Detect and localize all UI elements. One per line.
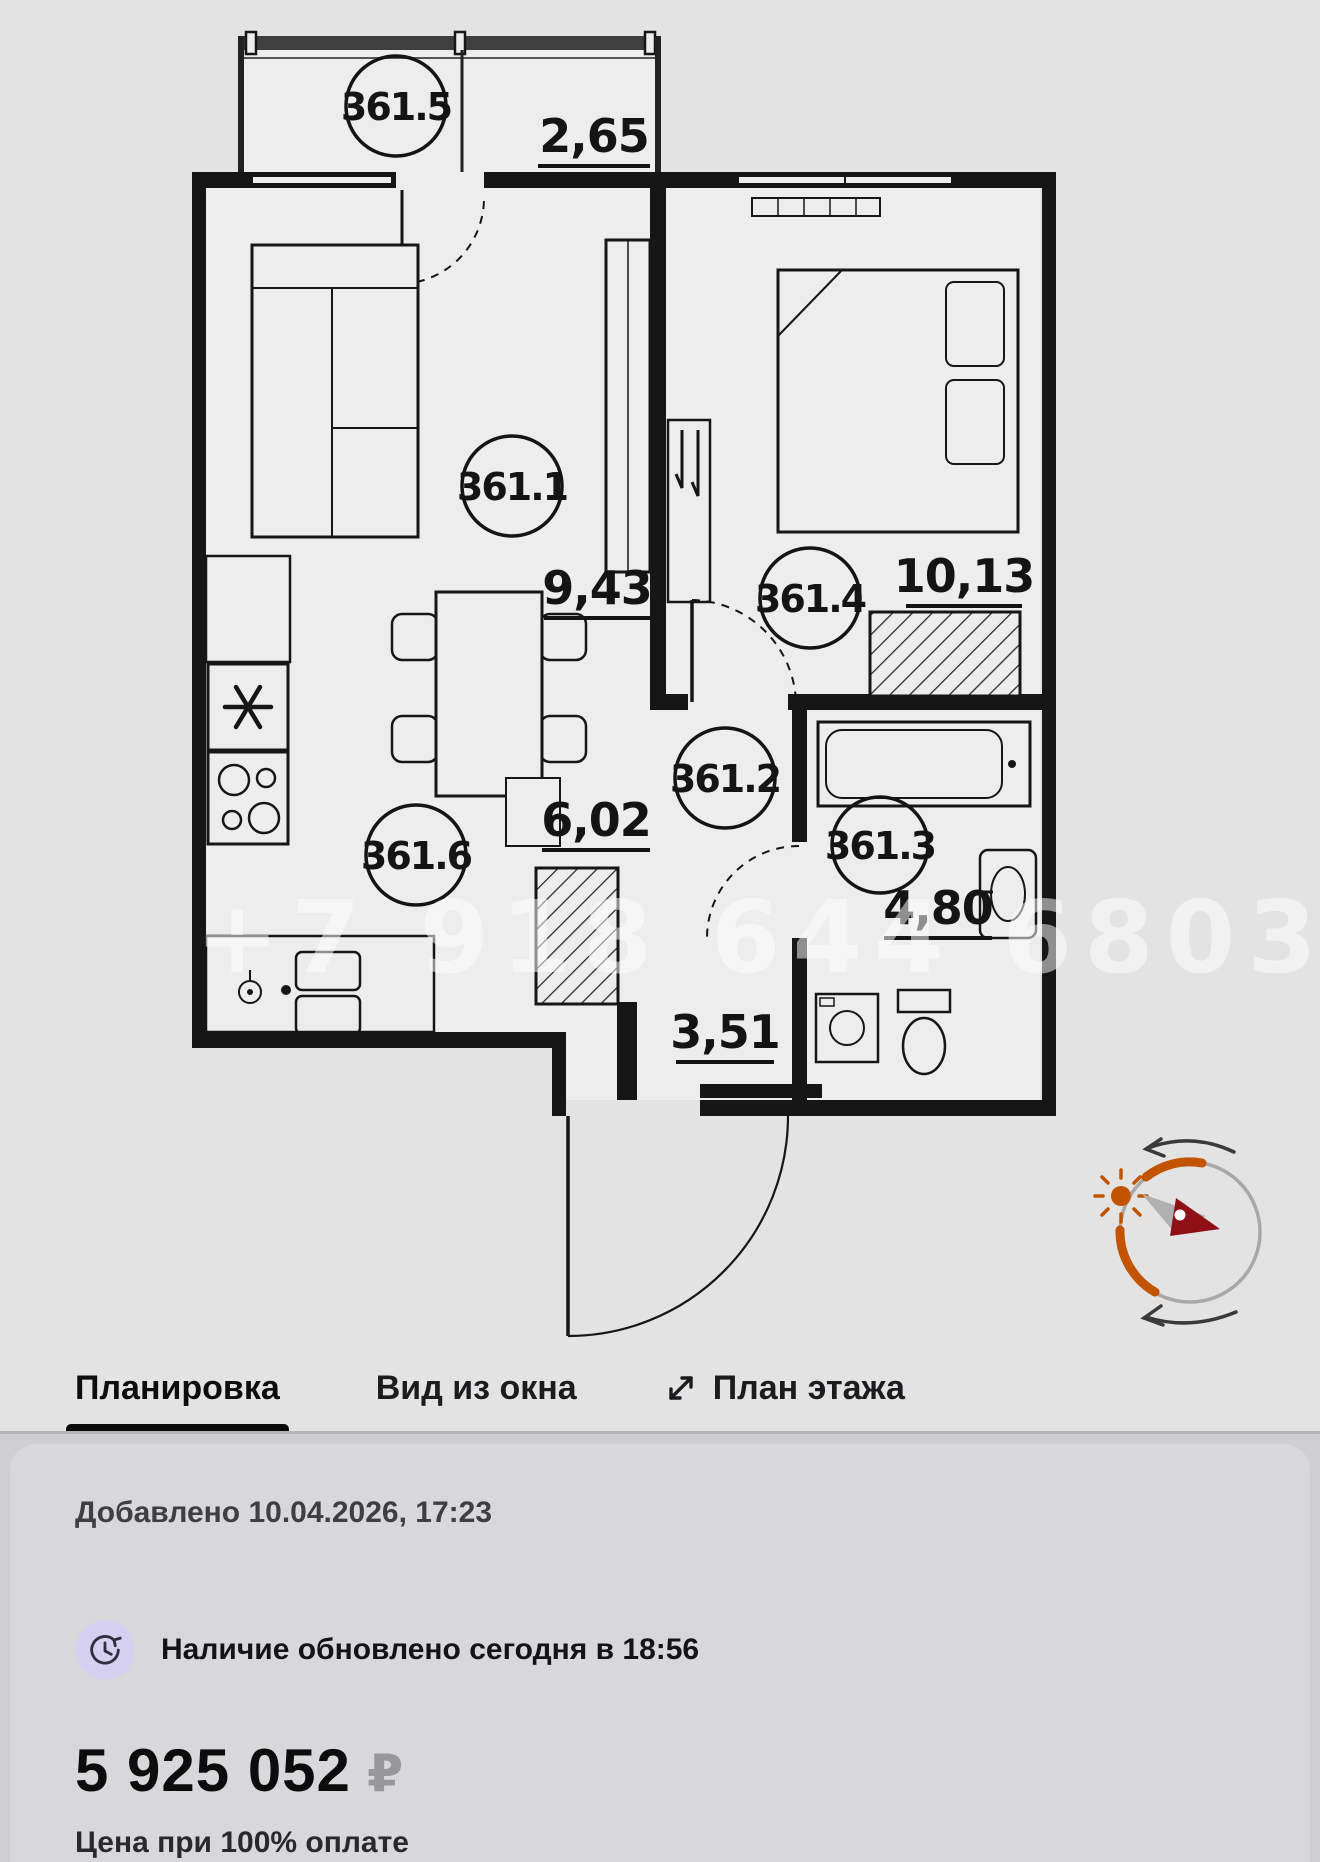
area-kitchen: 6,02 <box>541 793 651 847</box>
area-bedroom: 10,13 <box>894 549 1035 603</box>
tab-layout[interactable]: Планировка <box>75 1345 280 1431</box>
washing-machine <box>816 994 878 1062</box>
bathtub <box>818 722 1030 806</box>
active-tab-underline <box>66 1424 289 1431</box>
wardrobe <box>870 612 1020 696</box>
info-card: Добавлено 10.04.2026, 17:23 Наличие обно… <box>10 1444 1310 1862</box>
kitchen-cabinet <box>206 556 290 662</box>
area-balcony: 2,65 <box>539 109 649 163</box>
room-number-hallway: 361.2 <box>670 757 780 801</box>
sun-icon <box>1095 1170 1147 1222</box>
availability-text: Наличие обновлено сегодня в 18:56 <box>161 1633 699 1667</box>
phone-watermark: +7 918 644 6803 <box>195 879 1320 996</box>
room-number-living: 361.1 <box>457 465 567 509</box>
tab-window-view-label: Вид из окна <box>376 1369 577 1408</box>
price-value: 5 925 052 <box>75 1736 351 1805</box>
availability-row: Наличие обновлено сегодня в 18:56 <box>75 1620 699 1680</box>
clock-refresh-icon <box>86 1631 124 1669</box>
fridge <box>208 664 288 750</box>
toilet <box>898 990 950 1074</box>
room-number-kitchen: 361.6 <box>361 834 472 878</box>
added-date-text: Добавлено 10.04.2026, 17:23 <box>75 1496 492 1530</box>
media-tabbar: Планировка Вид из окна План этажа <box>0 1345 1320 1431</box>
tab-floor-plan[interactable]: План этажа <box>713 1345 905 1431</box>
room-number-bedroom: 361.4 <box>755 577 866 621</box>
tab-layout-label: Планировка <box>75 1369 280 1408</box>
expand-icon <box>663 1370 699 1406</box>
sofa <box>252 245 418 537</box>
listing-screen: { "floor_plan": { "watermark": "+7 918 6… <box>0 0 1320 1862</box>
bottom-sheet: Добавлено 10.04.2026, 17:23 Наличие обно… <box>0 1434 1320 1862</box>
room-number-balcony: 361.5 <box>341 85 451 129</box>
ruble-sign: ₽ <box>367 1744 403 1804</box>
bedroom-closet <box>668 420 710 602</box>
floor-plan-viewer: 361.5 361.1 361.4 361.2 361.3 361.6 2,65… <box>0 0 1320 1345</box>
tab-window-view[interactable]: Вид из окна <box>376 1345 577 1431</box>
tab-floor-plan-label: План этажа <box>713 1369 905 1408</box>
bed <box>778 270 1018 532</box>
price-row: 5 925 052 ₽ <box>75 1736 403 1805</box>
entry-door <box>568 1116 788 1336</box>
room-number-bathroom: 361.3 <box>825 824 935 868</box>
tv-cabinet <box>606 240 650 572</box>
compass-icon <box>1095 1139 1260 1325</box>
area-hallway: 3,51 <box>670 1005 780 1059</box>
price-note: Цена при 100% оплате <box>75 1826 409 1860</box>
area-living: 9,43 <box>542 561 652 615</box>
floor-plan-drawing: 361.5 361.1 361.4 361.2 361.3 361.6 2,65… <box>0 0 1320 1345</box>
stove <box>208 752 288 844</box>
availability-badge <box>75 1620 135 1680</box>
